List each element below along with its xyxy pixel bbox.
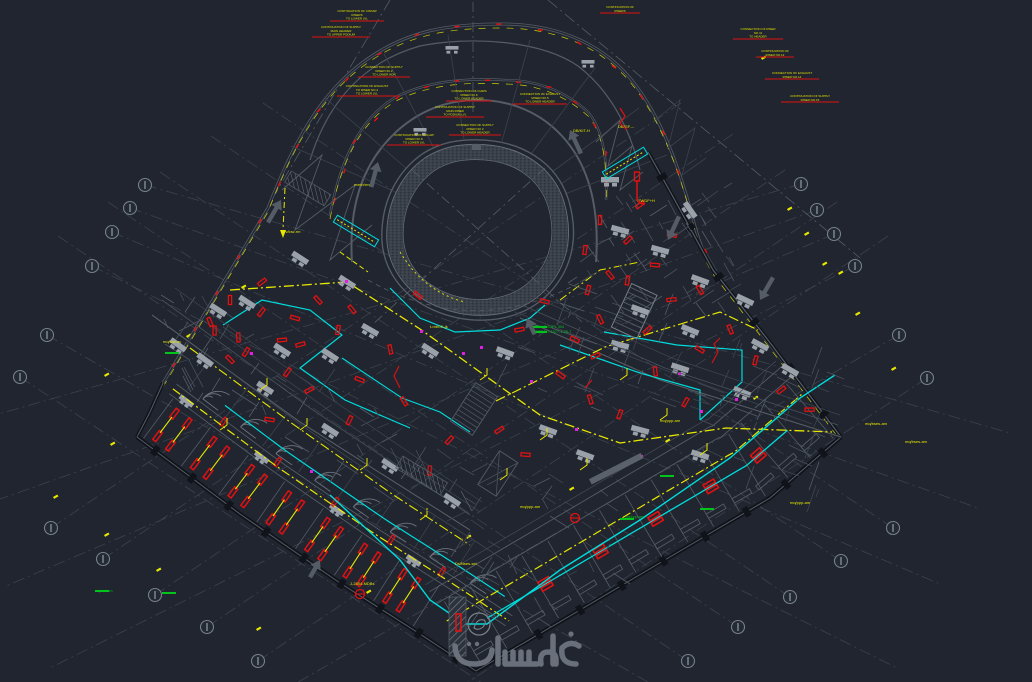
- svg-text:TO PODIUM LVL: TO PODIUM LVL: [444, 113, 467, 117]
- svg-text:TO LOWER LVL: TO LOWER LVL: [356, 92, 378, 96]
- svg-text:TO UPPER PODIUM: TO UPPER PODIUM: [327, 33, 356, 37]
- svg-text:Ds/Nses-sel: Ds/Nses-sel: [455, 561, 477, 566]
- svg-text:mq/ppp-am: mq/ppp-am: [625, 515, 644, 519]
- svg-text:J-2854-MDBs: J-2854-MDBs: [350, 581, 374, 586]
- svg-text:RISERS: RISERS: [614, 9, 625, 13]
- svg-text:TO HEADER: TO HEADER: [749, 35, 767, 39]
- svg-text:mq/bses-am: mq/bses-am: [865, 421, 888, 426]
- svg-text:t-mbCK-jk: t-mbCK-jk: [430, 324, 448, 329]
- svg-text:TO LOWER HEADER: TO LOWER HEADER: [525, 100, 555, 104]
- svg-text:RISER NO.14: RISER NO.14: [783, 75, 802, 79]
- svg-text:RISER NO.15: RISER NO.15: [801, 98, 820, 102]
- svg-text:TO LOWER HEADER: TO LOWER HEADER: [454, 97, 484, 101]
- svg-text:mq/bses-am: mq/bses-am: [905, 439, 928, 444]
- svg-text:DB/GF---: DB/GF---: [618, 124, 635, 129]
- svg-text:mq/rrd-am: mq/rrd-am: [95, 589, 113, 593]
- svg-text:mq/low-av: mq/low-av: [163, 339, 181, 344]
- svg-text:TO LOWER HEADER: TO LOWER HEADER: [460, 131, 490, 135]
- svg-text:TO LOWER LVL: TO LOWER LVL: [346, 17, 368, 21]
- svg-text:RISER NO.12: RISER NO.12: [766, 53, 785, 57]
- svg-text:mq/ppp-am: mq/ppp-am: [520, 504, 541, 509]
- svg-text:TRQDF 7-1577-1-25-7: TRQDF 7-1577-1-25-7: [533, 330, 571, 334]
- svg-text:TO LOWER HDR: TO LOWER HDR: [372, 73, 396, 77]
- svg-text:srv/low-rm: srv/low-rm: [282, 229, 301, 234]
- svg-text:mq/ppp-am: mq/ppp-am: [660, 418, 681, 423]
- svg-text:PER LT SUPL 304: PER LT SUPL 304: [533, 325, 564, 329]
- svg-text:mech/rm: mech/rm: [354, 182, 370, 187]
- svg-text:TO LOWER LVL: TO LOWER LVL: [403, 141, 425, 145]
- svg-text:mq/ppp-am: mq/ppp-am: [790, 500, 811, 505]
- svg-text:DB/KIT-H: DB/KIT-H: [573, 128, 590, 133]
